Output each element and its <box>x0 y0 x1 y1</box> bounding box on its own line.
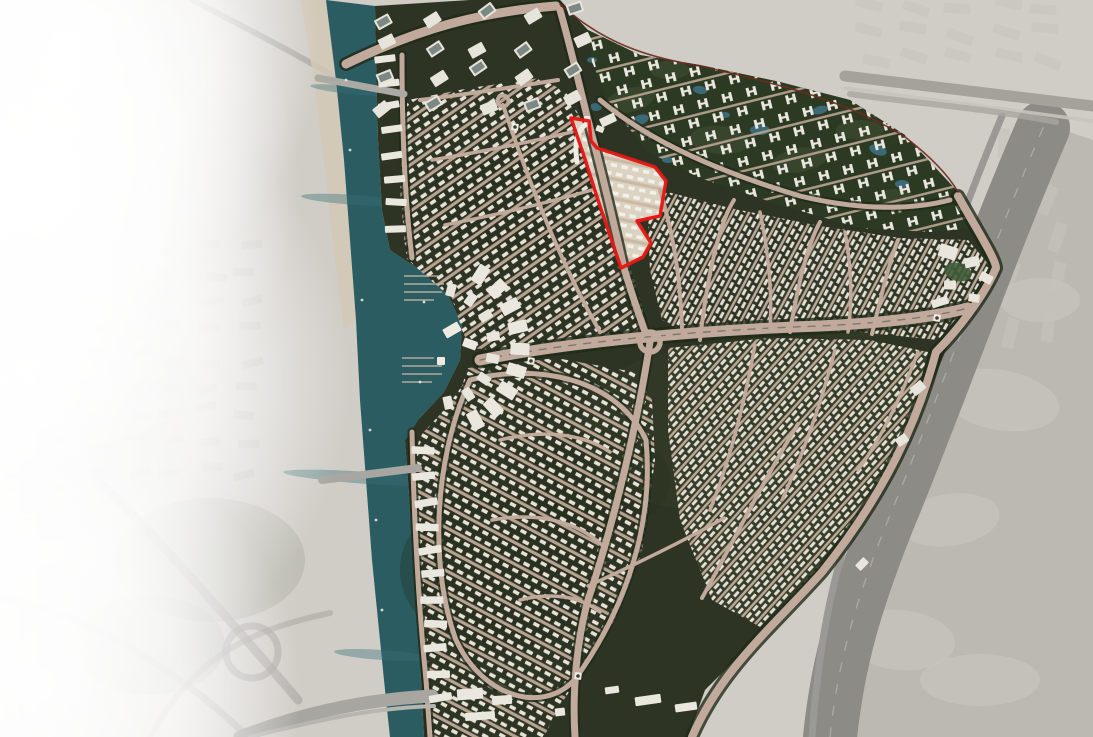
masterplan-map <box>0 0 1093 737</box>
map-viewport <box>0 0 1093 737</box>
fade-left-band <box>0 0 1093 737</box>
map-layers <box>0 0 1093 737</box>
